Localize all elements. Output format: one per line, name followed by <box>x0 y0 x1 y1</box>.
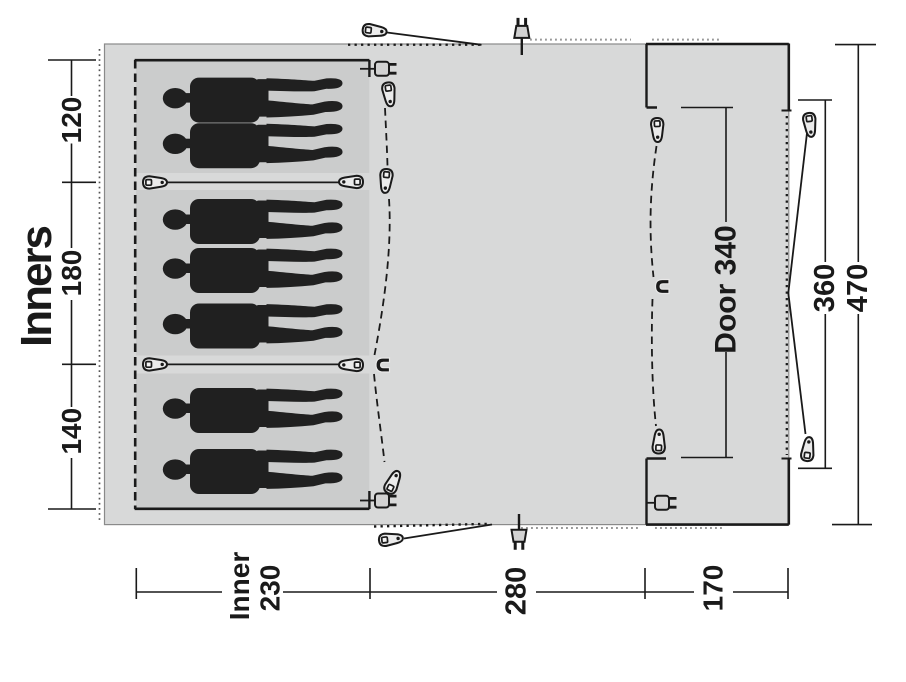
svg-text:Door 340: Door 340 <box>710 225 743 353</box>
svg-text:140: 140 <box>56 408 87 455</box>
svg-text:120: 120 <box>56 97 87 144</box>
svg-text:Inners: Inners <box>12 226 61 347</box>
svg-text:360: 360 <box>809 264 841 312</box>
svg-text:470: 470 <box>842 264 874 312</box>
svg-text:170: 170 <box>698 565 729 612</box>
svg-text:280: 280 <box>501 567 533 615</box>
svg-text:230: 230 <box>254 565 285 612</box>
svg-text:Inner: Inner <box>224 552 255 621</box>
